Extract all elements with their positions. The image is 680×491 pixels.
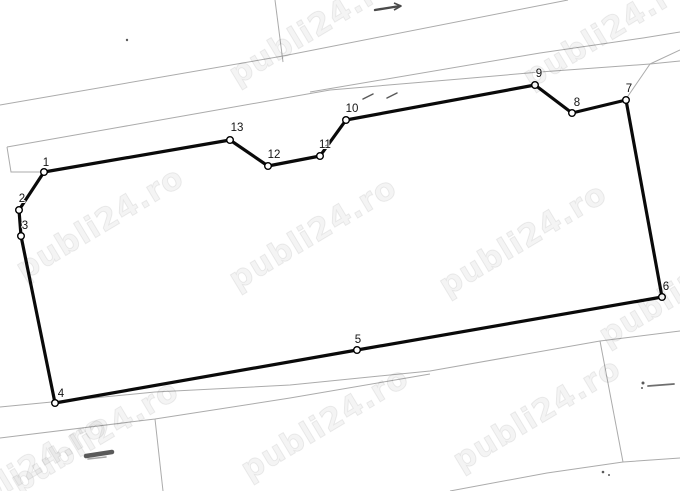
ink-speck	[642, 382, 645, 385]
vertex-marker-2	[16, 207, 23, 214]
parcel-boundary-line	[7, 147, 44, 172]
watermark-text: publi24.ro	[222, 0, 403, 93]
vertex-label-11: 11	[319, 139, 331, 151]
vertex-label-13: 13	[231, 122, 244, 134]
vertex-label-4: 4	[58, 388, 65, 400]
vertex-label-10: 10	[346, 103, 359, 115]
watermark-text: publi24.ro	[234, 359, 415, 487]
vertex-marker-10	[343, 117, 350, 124]
watermark-layer: publi24.ropubli24.ropubli24.ropubli24.ro…	[0, 0, 680, 491]
vertex-label-3: 3	[22, 220, 28, 232]
ink-smudge	[648, 384, 674, 386]
vertex-marker-3	[18, 233, 25, 240]
cadastral-sketch-svg: 12345678910111213 publi24.ropubli24.ropu…	[0, 0, 680, 491]
watermark-text: publi24.ro	[446, 350, 627, 478]
vertex-marker-12	[265, 163, 272, 170]
vertex-label-5: 5	[355, 334, 361, 346]
cadastral-sketch: 12345678910111213 publi24.ropubli24.ropu…	[0, 0, 680, 491]
watermark-text: publi24.ro	[516, 0, 680, 96]
ink-speck	[126, 39, 128, 41]
vertex-label-1: 1	[43, 157, 49, 169]
ink-speck	[608, 474, 610, 476]
vertex-marker-7	[623, 97, 630, 104]
watermark-text: publi24.ro	[432, 175, 613, 303]
watermark-text: publi24.ro	[222, 169, 403, 297]
vertex-label-12: 12	[268, 149, 281, 161]
vertex-label-2: 2	[19, 193, 25, 205]
vertex-marker-1	[41, 169, 48, 176]
parcel-boundary-line	[155, 419, 163, 491]
ink-speck	[641, 387, 643, 389]
vertex-marker-8	[569, 110, 576, 117]
vertex-marker-4	[52, 400, 59, 407]
vertex-marker-13	[227, 137, 234, 144]
tick-mark-icon	[387, 93, 397, 98]
watermark-text: publi24.ro	[9, 159, 190, 287]
vertex-label-7: 7	[626, 83, 632, 95]
plot-boundary	[19, 85, 662, 403]
tick-mark-icon	[363, 94, 373, 99]
ink-speck	[602, 471, 605, 474]
vertex-markers	[16, 82, 666, 407]
plot-boundary-polygon	[19, 85, 662, 403]
vertex-marker-11	[317, 153, 324, 160]
watermark-text: publi24.ro	[592, 225, 680, 353]
vertex-label-8: 8	[574, 97, 580, 109]
vertex-marker-5	[354, 347, 361, 354]
